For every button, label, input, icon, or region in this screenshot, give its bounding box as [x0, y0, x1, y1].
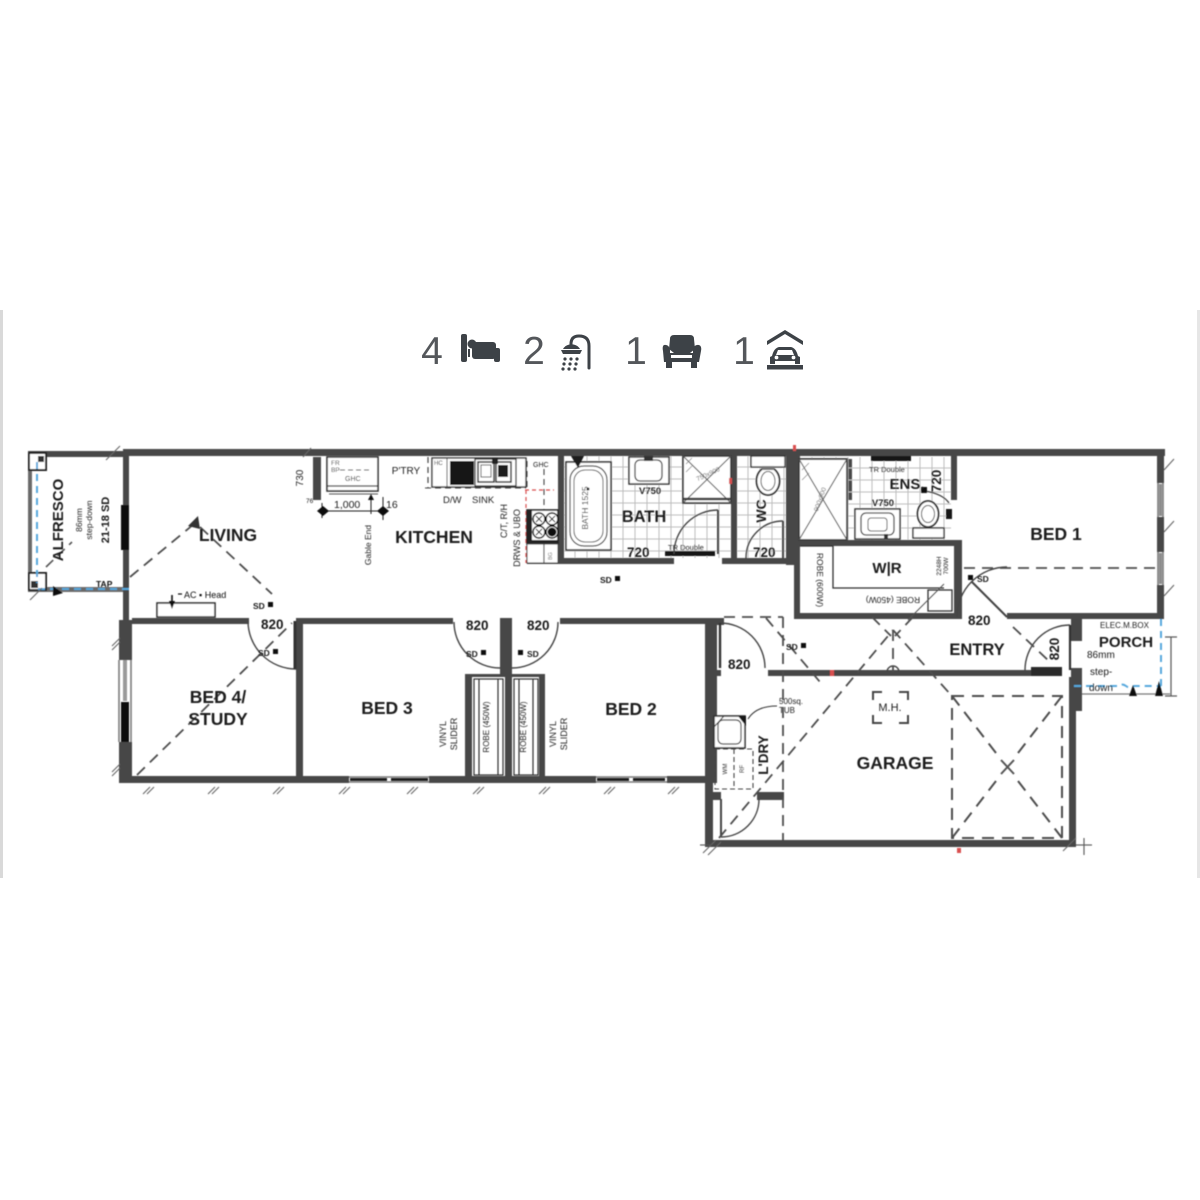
- svg-text:VINYL: VINYL: [438, 721, 448, 747]
- svg-text:VINYL: VINYL: [548, 721, 558, 747]
- svg-text:820: 820: [1047, 638, 1062, 661]
- svg-text:D/W: D/W: [443, 495, 462, 506]
- svg-text:L'DRY: L'DRY: [756, 735, 771, 774]
- svg-text:BATH: BATH: [622, 508, 667, 526]
- svg-text:4: 4: [421, 330, 443, 373]
- svg-text:76: 76: [306, 498, 314, 505]
- svg-text:1: 1: [625, 330, 647, 373]
- svg-text:GHC: GHC: [533, 462, 549, 469]
- svg-text:LIVING: LIVING: [199, 525, 257, 545]
- svg-text:BED 1: BED 1: [1030, 524, 1082, 544]
- svg-text:M.H.: M.H.: [878, 702, 901, 714]
- svg-text:GHC: GHC: [345, 476, 361, 483]
- svg-text:BG: BG: [548, 552, 554, 560]
- svg-text:SD: SD: [253, 601, 265, 611]
- svg-text:ENTRY: ENTRY: [949, 641, 1004, 659]
- svg-text:PORCH: PORCH: [1099, 634, 1153, 651]
- svg-text:820: 820: [527, 618, 550, 633]
- svg-text:step-: step-: [1090, 667, 1112, 678]
- svg-text:ROBE (450W): ROBE (450W): [519, 701, 528, 752]
- svg-text:700W: 700W: [943, 557, 950, 575]
- svg-text:STUDY: STUDY: [188, 709, 248, 729]
- svg-text:730: 730: [295, 469, 306, 486]
- svg-text:FR: FR: [331, 460, 340, 467]
- svg-text:86mm: 86mm: [1087, 650, 1115, 661]
- svg-text:820: 820: [728, 657, 751, 672]
- svg-text:SD: SD: [527, 649, 539, 659]
- svg-text:WC: WC: [753, 499, 769, 522]
- svg-text:V750: V750: [872, 498, 894, 509]
- svg-text:TR Double: TR Double: [869, 465, 905, 474]
- svg-text:P'TRY: P'TRY: [392, 466, 421, 477]
- svg-text:SD: SD: [258, 648, 270, 658]
- svg-text:820: 820: [968, 613, 991, 628]
- svg-text:ROBE (600W): ROBE (600W): [815, 553, 825, 607]
- svg-text:820: 820: [466, 618, 489, 633]
- svg-text:720: 720: [929, 470, 944, 493]
- svg-text:down: down: [1089, 683, 1113, 694]
- svg-text:TR Double: TR Double: [668, 543, 704, 552]
- svg-text:DRWS & UBO: DRWS & UBO: [512, 509, 522, 567]
- svg-text:BED 3: BED 3: [361, 698, 413, 718]
- svg-text:TAP: TAP: [96, 579, 113, 589]
- svg-text:ROBE (450W): ROBE (450W): [482, 701, 491, 752]
- svg-text:C/T, R/H: C/T, R/H: [499, 504, 509, 538]
- svg-text:720: 720: [753, 545, 776, 560]
- svg-text:21-18 SD: 21-18 SD: [100, 497, 112, 544]
- svg-text:BATH 1525: BATH 1525: [580, 486, 590, 530]
- svg-text:GARAGE: GARAGE: [857, 753, 934, 773]
- svg-text:ENS.: ENS.: [889, 476, 924, 493]
- svg-text:WM: WM: [723, 764, 729, 775]
- svg-text:ROBE (450W): ROBE (450W): [866, 595, 920, 605]
- svg-text:SD: SD: [466, 649, 478, 659]
- svg-text:SLIDER: SLIDER: [449, 717, 459, 750]
- svg-text:step-down: step-down: [84, 500, 94, 539]
- svg-text:BED 2: BED 2: [605, 699, 657, 719]
- svg-text:Gable End: Gable End: [363, 525, 373, 565]
- svg-text:820: 820: [261, 617, 284, 632]
- svg-text:HC: HC: [434, 461, 443, 467]
- svg-text:RF: RF: [740, 765, 746, 773]
- svg-text:KITCHEN: KITCHEN: [395, 527, 473, 547]
- svg-text:SD: SD: [786, 642, 798, 652]
- svg-text:BP: BP: [331, 467, 340, 474]
- svg-text:SINK: SINK: [472, 495, 495, 506]
- svg-text:2: 2: [523, 330, 545, 373]
- svg-text:BED 4/: BED 4/: [190, 687, 247, 707]
- svg-text:1,000: 1,000: [334, 499, 360, 511]
- svg-text:AC ▪ Head: AC ▪ Head: [184, 590, 226, 600]
- svg-text:TUB: TUB: [779, 706, 795, 715]
- svg-text:2248H: 2248H: [936, 556, 943, 575]
- svg-text:SD: SD: [600, 575, 612, 585]
- svg-text:16: 16: [386, 499, 398, 511]
- svg-text:1: 1: [733, 330, 755, 373]
- svg-text:V750: V750: [639, 486, 661, 497]
- svg-text:ALFRESCO: ALFRESCO: [50, 478, 67, 561]
- svg-text:720: 720: [627, 545, 650, 560]
- svg-text:W|R: W|R: [872, 560, 901, 577]
- svg-text:SD: SD: [977, 574, 989, 584]
- svg-text:86mm: 86mm: [74, 508, 84, 532]
- svg-text:ELEC.M.BOX: ELEC.M.BOX: [1100, 621, 1150, 630]
- svg-text:SLIDER: SLIDER: [559, 717, 569, 750]
